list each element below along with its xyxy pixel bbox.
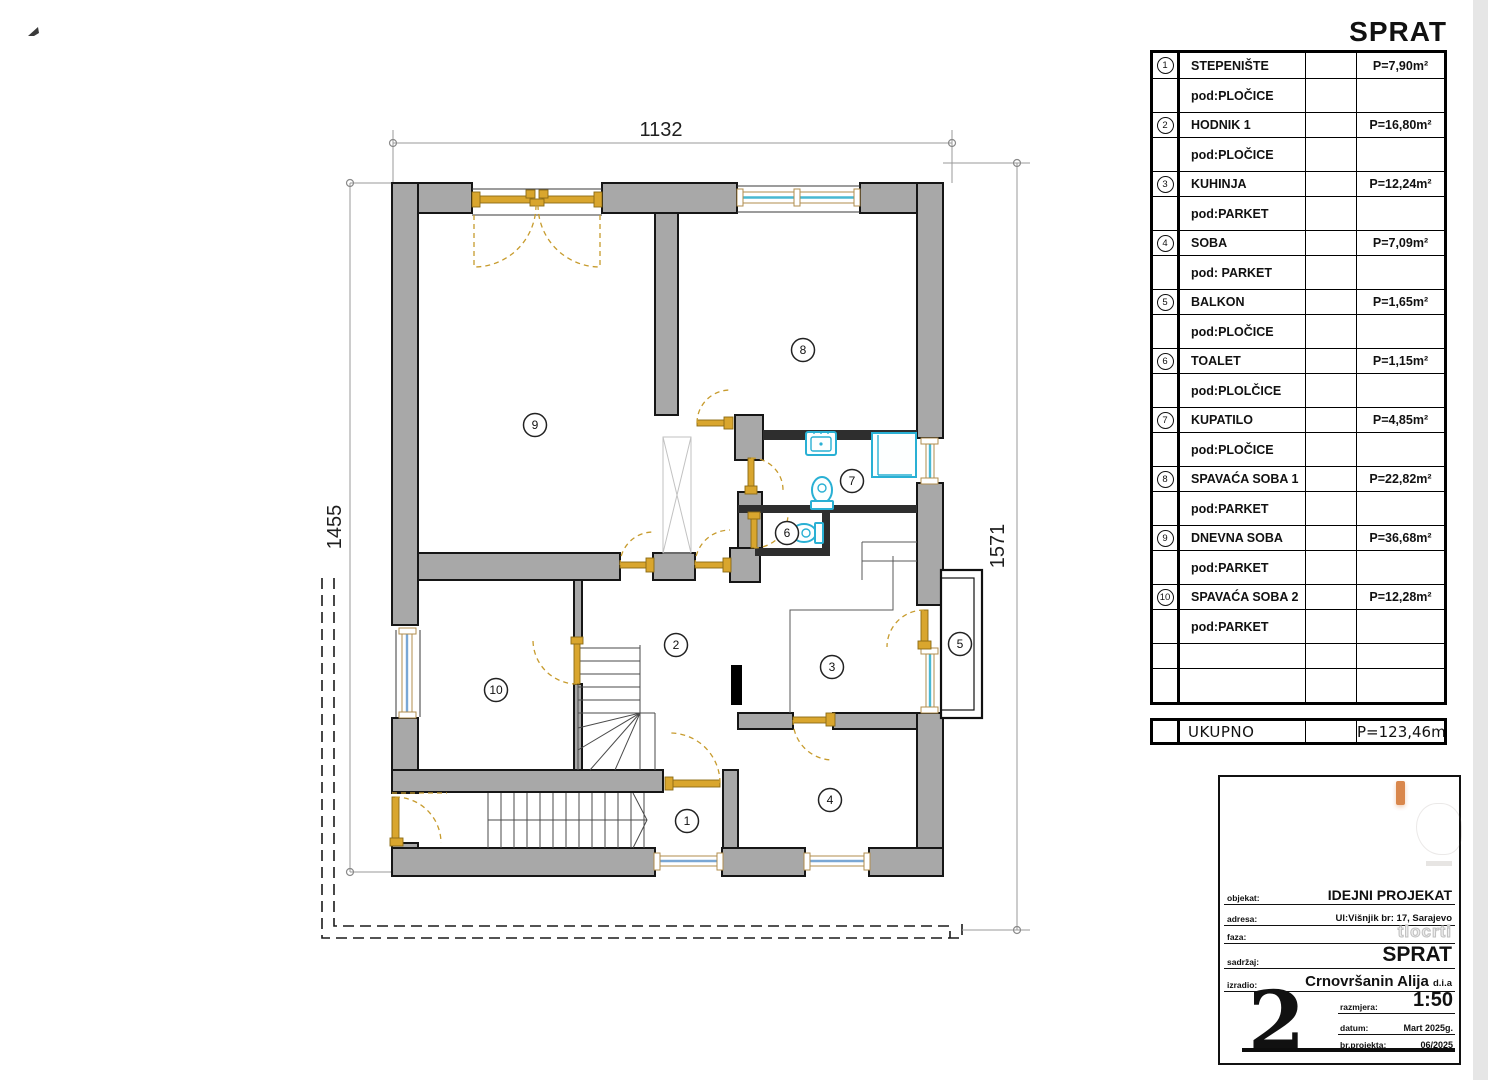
room-name: KUPATILO [1180,413,1253,427]
stamp-spot-mark [1426,861,1452,866]
legend-row-floor: pod:PLOLČICE [1153,373,1444,407]
field-objekat: objekat: IDEJNI PROJEKAT [1224,877,1455,905]
room-name: SOBA [1180,236,1227,250]
room-label-7: 7 [841,470,864,493]
room-label-1: 1 [676,810,699,833]
title-block: objekat: IDEJNI PROJEKAT adresa: Ul:Višn… [1218,775,1461,1065]
legend-row-name: 10SPAVAĆA SOBA 2P=12,28m² [1153,584,1444,609]
svg-text:7: 7 [849,474,856,488]
field-sadrzaj: sadržaj: SPRAT [1224,944,1455,969]
toilet-icon-kupatilo [811,477,833,509]
double-door-top [472,189,602,267]
total-label: UKUPNO [1180,723,1254,741]
total-area: P=123,46m² [1357,723,1444,741]
svg-text:4: 4 [827,793,834,807]
legend-row-name: 1STEPENIŠTEP=7,90m² [1153,53,1444,78]
room-area: P=4,85m² [1357,413,1444,427]
room-number-badge: 7 [1157,412,1174,429]
legend-row-floor: pod:PLOČICE [1153,78,1444,112]
room-number-badge: 2 [1157,117,1174,134]
room-floor-finish: pod:PLOČICE [1180,325,1274,339]
sink-icon [806,432,836,455]
room-label-10: 10 [485,679,508,702]
stairs-layer [488,645,655,848]
door-hodnik [695,530,731,572]
room-area: P=36,68m² [1357,531,1444,545]
door-stepeniste [665,733,720,790]
stair-void [663,437,691,553]
room-number-badge: 9 [1157,530,1174,547]
svg-text:5: 5 [957,637,964,651]
stamp-mark [1396,781,1405,805]
room-floor-finish: pod:PLOČICE [1180,89,1274,103]
room-label-3: 3 [821,656,844,679]
legend-row-name: 2HODNIK 1P=16,80m² [1153,112,1444,137]
stamp-swirl-mark [1416,803,1462,855]
room-area: P=7,90m² [1357,59,1444,73]
svg-text:2: 2 [673,638,680,652]
legend-row-floor: pod:PLOČICE [1153,432,1444,466]
page-edge-shadow [1473,0,1488,1080]
svg-text:1: 1 [684,814,691,828]
room-number-badge: 8 [1157,471,1174,488]
svg-text:6: 6 [784,526,791,540]
floor-plan: 1132 1455 1571 [0,0,1140,1080]
room-floor-finish: pod:PARKET [1180,502,1269,516]
room-area: P=7,09m² [1357,236,1444,250]
room-label-8: 8 [792,339,815,362]
svg-text:3: 3 [829,660,836,674]
legend-row-floor: pod:PARKET [1153,491,1444,525]
title-block-meta: razmjera: 1:50 datum: Mart 2025g. br.pro… [1338,992,1455,1052]
room-floor-finish: pod:PLOLČICE [1180,384,1281,398]
room-name: STEPENIŠTE [1180,59,1269,73]
room-label-6: 6 [776,522,799,545]
door-kupatilo [745,458,783,494]
legend-row-name: 4SOBAP=7,09m² [1153,230,1444,255]
shower-icon [872,433,916,477]
door-soba [793,713,835,760]
door-balkon [887,610,931,649]
room-floor-finish: pod:PLOČICE [1180,443,1274,457]
door-spavaca2 [533,637,583,684]
title-block-base-line [1242,1048,1455,1052]
room-area: P=16,80m² [1357,118,1444,132]
dimension-left: 1455 [324,505,346,550]
room-area: P=1,65m² [1357,295,1444,309]
room-label-9: 9 [524,414,547,437]
room-area: P=12,24m² [1357,177,1444,191]
legend-row-empty [1153,643,1444,668]
legend-row-name: 5BALKONP=1,65m² [1153,289,1444,314]
room-area: P=22,82m² [1357,472,1444,486]
room-label-5: 5 [949,633,972,656]
door-dnevna [620,532,654,572]
room-label-2: 2 [665,634,688,657]
room-floor-finish: pod:PARKET [1180,207,1269,221]
room-legend-table: 1STEPENIŠTEP=7,90m²pod:PLOČICE2HODNIK 1P… [1150,50,1447,705]
legend-row-name: 7KUPATILOP=4,85m² [1153,407,1444,432]
room-number-badge: 6 [1157,353,1174,370]
legend-row-floor: pod:PLOČICE [1153,137,1444,171]
legend-table: 1STEPENIŠTEP=7,90m²pod:PLOČICE2HODNIK 1P… [1153,53,1444,702]
room-floor-finish: pod:PARKET [1180,620,1269,634]
door-exterior-left [390,793,447,846]
legend-row-name: 3KUHINJAP=12,24m² [1153,171,1444,196]
room-label-4: 4 [819,789,842,812]
legend-row-floor: pod:PARKET [1153,609,1444,643]
field-razmjera: razmjera: 1:50 [1338,992,1455,1014]
room-labels: 1 2 3 4 5 6 7 8 9 10 [485,339,972,833]
door-spavaca1 [697,390,733,429]
room-floor-finish: pod:PLOČICE [1180,148,1274,162]
room-name: TOALET [1180,354,1241,368]
room-name: HODNIK 1 [1180,118,1251,132]
legend-row-name: 8SPAVAĆA SOBA 1P=22,82m² [1153,466,1444,491]
page-title: SPRAT [1150,16,1447,48]
svg-text:9: 9 [532,418,539,432]
legend-row-name: 6TOALETP=1,15m² [1153,348,1444,373]
legend-row-floor: pod: PARKET [1153,255,1444,289]
legend-row-empty [1153,668,1444,702]
field-datum: datum: Mart 2025g. [1338,1014,1455,1035]
legend-row-name: 9DNEVNA SOBAP=36,68m² [1153,525,1444,550]
room-name: KUHINJA [1180,177,1247,191]
drawing-sheet: 1132 1455 1571 [0,0,1488,1080]
room-number-badge: 3 [1157,176,1174,193]
room-number-badge: 10 [1157,589,1174,606]
walls-layer [392,183,943,876]
room-name: BALKON [1180,295,1244,309]
dimension-top: 1132 [639,119,682,141]
room-name: SPAVAĆA SOBA 2 [1180,590,1298,604]
room-area: P=12,28m² [1357,590,1444,604]
room-number-badge: 5 [1157,294,1174,311]
room-area: P=1,15m² [1357,354,1444,368]
legend-row-floor: pod:PLOČICE [1153,314,1444,348]
field-faza: faza: tlocrti [1224,926,1455,944]
dimension-right: 1571 [987,524,1009,569]
room-floor-finish: pod:PARKET [1180,561,1269,575]
svg-text:10: 10 [489,683,503,697]
legend-total-row: UKUPNO P=123,46m² [1150,718,1447,745]
room-name: DNEVNA SOBA [1180,531,1283,545]
room-number-badge: 1 [1157,57,1174,74]
room-name: SPAVAĆA SOBA 1 [1180,472,1298,486]
svg-text:8: 8 [800,343,807,357]
legend-row-floor: pod:PARKET [1153,196,1444,230]
room-floor-finish: pod: PARKET [1180,266,1272,280]
kitchen-counter-outline [790,542,917,713]
legend-row-floor: pod:PARKET [1153,550,1444,584]
room-number-badge: 4 [1157,235,1174,252]
